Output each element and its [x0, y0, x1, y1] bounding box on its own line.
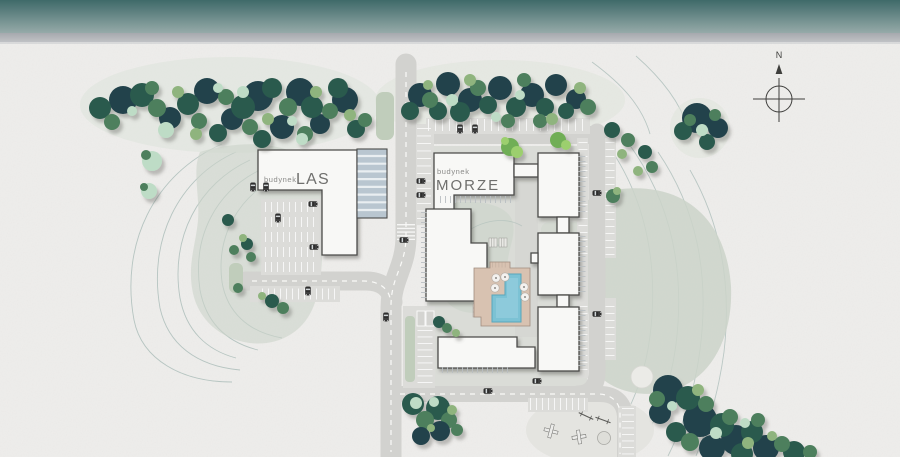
faint-circle	[631, 366, 653, 388]
morze-block-6	[538, 307, 579, 371]
morze-connector-1	[514, 164, 538, 177]
las-label-prefix: budynek	[264, 175, 297, 184]
morze-label-name[interactable]: MORZE	[436, 177, 500, 194]
morze-block-4-wing	[531, 253, 538, 263]
morze-block-3	[538, 153, 579, 217]
compass-north-label: N	[776, 50, 783, 60]
morze-label-prefix: budynek	[437, 167, 470, 176]
morze-connector-3	[557, 295, 569, 307]
las-label-name[interactable]: LAS	[296, 171, 330, 188]
site-plan: N budynek LAS budynek MORZE	[0, 0, 900, 457]
pool-area	[474, 262, 530, 326]
sand-circle	[598, 432, 611, 445]
morze-connector-2	[557, 217, 569, 233]
shoreline	[0, 33, 900, 42]
site-plan-canvas: N budynek LAS budynek MORZE	[0, 0, 900, 457]
morze-block-4	[538, 233, 579, 295]
las-roof-stripes	[357, 149, 387, 218]
sea	[0, 0, 900, 33]
